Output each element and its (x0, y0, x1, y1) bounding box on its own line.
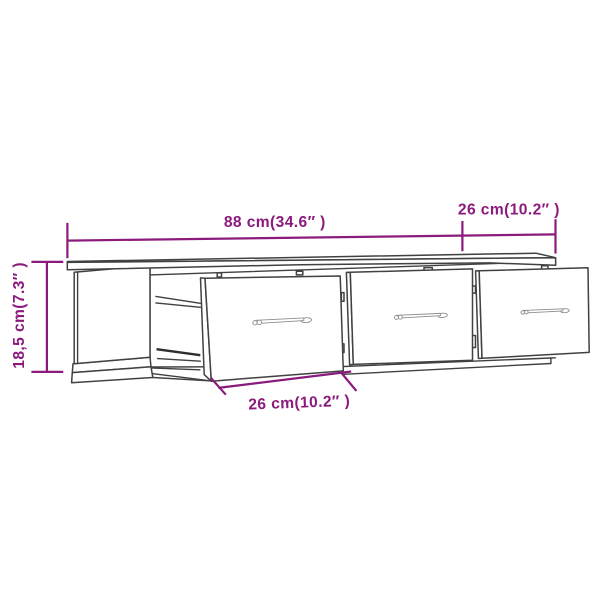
svg-text:26 cm(10.2″ ): 26 cm(10.2″ ) (458, 201, 560, 218)
svg-text:88 cm(34.6″ ): 88 cm(34.6″ ) (224, 214, 326, 231)
svg-text:18,5 cm(7.3″ ): 18,5 cm(7.3″ ) (11, 262, 28, 369)
